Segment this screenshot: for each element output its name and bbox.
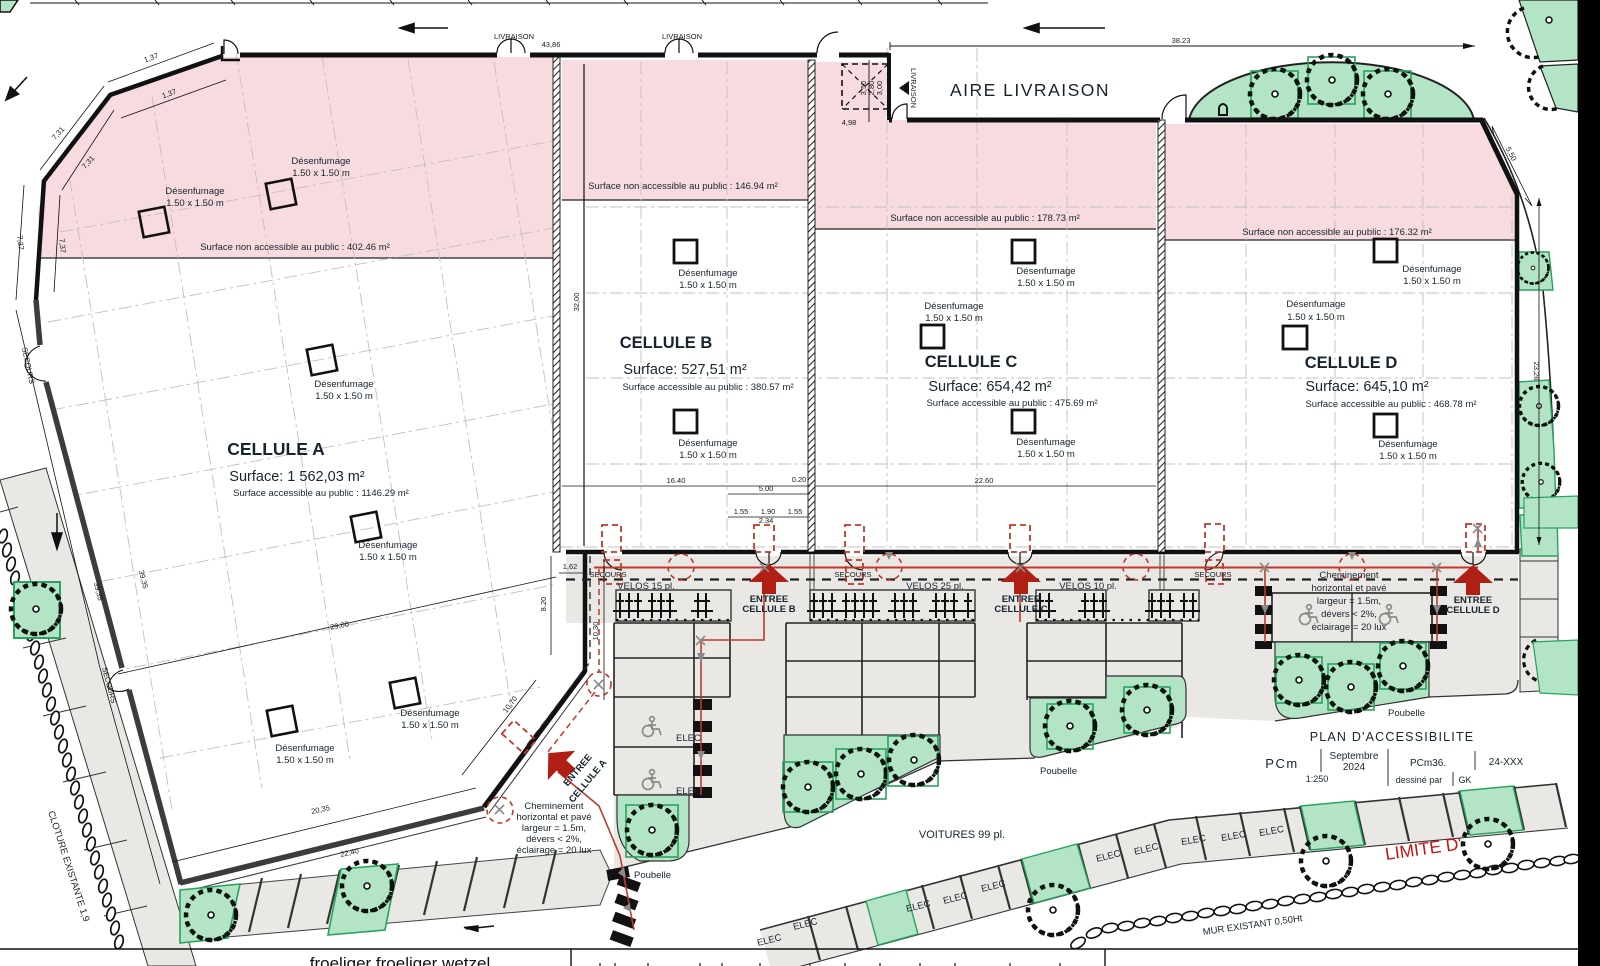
svg-text:LIVRAISON: LIVRAISON — [909, 68, 918, 108]
svg-text:Surface accessible au public :: Surface accessible au public : 1146.29 m… — [233, 488, 409, 499]
svg-text:Septembre: Septembre — [1330, 751, 1379, 762]
svg-text:23,26: 23,26 — [1532, 362, 1541, 381]
svg-text:1.50 x 1.50 m: 1.50 x 1.50 m — [1017, 449, 1075, 460]
svg-text:horizontal et pavé: horizontal et pavé — [517, 812, 592, 823]
svg-text:1.50 x 1.50 m: 1.50 x 1.50 m — [1287, 312, 1345, 323]
svg-text:Désenfumage: Désenfumage — [1402, 264, 1461, 275]
svg-text:CELLULE C: CELLULE C — [925, 353, 1018, 371]
svg-text:Désenfumage: Désenfumage — [1286, 299, 1345, 310]
svg-text:22.60: 22.60 — [975, 476, 994, 485]
svg-text:1.50 x 1.50 m: 1.50 x 1.50 m — [166, 198, 224, 209]
svg-text:VELOS 10 pl.: VELOS 10 pl. — [1059, 581, 1117, 592]
svg-text:Surface non accessible au publ: Surface non accessible au public : 178.7… — [890, 213, 1080, 224]
svg-text:Surface non accessible au publ: Surface non accessible au public : 176.3… — [1242, 227, 1432, 238]
svg-text:1.50 x 1.50 m: 1.50 x 1.50 m — [1403, 276, 1461, 287]
svg-text:Désenfumage: Désenfumage — [1016, 437, 1075, 448]
svg-text:CELLULE D: CELLULE D — [1305, 354, 1398, 372]
svg-text:Désenfumage: Désenfumage — [678, 438, 737, 449]
svg-text:1.50 x 1.50 m: 1.50 x 1.50 m — [359, 552, 417, 563]
svg-text:Surface: 527,51 m²: Surface: 527,51 m² — [623, 362, 746, 378]
svg-text:16.40: 16.40 — [667, 476, 686, 485]
svg-text:1.50 x 1.50 m: 1.50 x 1.50 m — [679, 280, 737, 291]
svg-text:ELEC: ELEC — [676, 733, 701, 744]
svg-text:1.50 x 1.50 m: 1.50 x 1.50 m — [925, 313, 983, 324]
svg-text:VOITURES 99 pl.: VOITURES 99 pl. — [919, 829, 1005, 841]
svg-text:2.34: 2.34 — [759, 516, 774, 525]
svg-text:Désenfumage: Désenfumage — [275, 743, 334, 754]
svg-text:froeliger froeliger wetzel: froeliger froeliger wetzel — [310, 954, 490, 966]
svg-text:5.00: 5.00 — [759, 484, 774, 493]
svg-text:SECOURS: SECOURS — [589, 570, 626, 579]
svg-text:1.50 x 1.50 m: 1.50 x 1.50 m — [315, 391, 373, 402]
svg-text:4,98: 4,98 — [842, 118, 857, 127]
svg-text:dessiné par: dessiné par — [1396, 775, 1443, 785]
svg-text:largeur = 1.5m,: largeur = 1.5m, — [522, 823, 586, 834]
svg-text:7,37: 7,37 — [15, 235, 25, 250]
svg-text:Désenfumage: Désenfumage — [400, 708, 459, 719]
svg-text:PCm36.: PCm36. — [1410, 758, 1446, 769]
svg-text:SECOURS: SECOURS — [834, 570, 871, 579]
svg-text:1.90: 1.90 — [761, 507, 776, 516]
svg-text:horizontal et pavé: horizontal et pavé — [1312, 583, 1387, 594]
svg-text:Surface: 645,10 m²: Surface: 645,10 m² — [1305, 379, 1428, 395]
svg-text:0.20: 0.20 — [792, 475, 807, 484]
svg-text:32,00: 32,00 — [572, 293, 581, 312]
svg-text:dévers < 2%,: dévers < 2%, — [1321, 609, 1377, 620]
svg-text:10,30: 10,30 — [591, 622, 600, 641]
svg-text:Poubelle: Poubelle — [1040, 766, 1077, 777]
svg-text:38.23: 38.23 — [1172, 36, 1191, 45]
svg-text:Surface non accessible au publ: Surface non accessible au public : 402.4… — [200, 242, 390, 253]
svg-text:Désenfumage: Désenfumage — [165, 186, 224, 197]
svg-text:CELLULE D: CELLULE D — [1446, 605, 1499, 616]
svg-text:3,00: 3,00 — [875, 81, 884, 96]
svg-text:1.50 x 1.50 m: 1.50 x 1.50 m — [276, 755, 334, 766]
svg-text:7,37: 7,37 — [57, 238, 67, 253]
svg-text:2024: 2024 — [1343, 762, 1366, 773]
svg-text:1:250: 1:250 — [1306, 774, 1329, 784]
svg-text:CELLULE B: CELLULE B — [620, 334, 713, 352]
svg-text:Surface accessible au public :: Surface accessible au public : 475.69 m² — [926, 398, 1097, 409]
svg-text:1.55: 1.55 — [788, 507, 803, 516]
svg-text:éclairage = 20 lux: éclairage = 20 lux — [1312, 622, 1387, 633]
svg-text:LIVRAISON: LIVRAISON — [662, 32, 702, 41]
svg-text:ELEC: ELEC — [676, 786, 701, 797]
svg-text:Désenfumage: Désenfumage — [1016, 266, 1075, 277]
svg-text:AIRE LIVRAISON: AIRE LIVRAISON — [950, 80, 1110, 100]
svg-text:largeur = 1.5m,: largeur = 1.5m, — [1317, 596, 1381, 607]
svg-text:PCm: PCm — [1265, 756, 1298, 771]
svg-text:1.50 x 1.50 m: 1.50 x 1.50 m — [292, 168, 350, 179]
svg-text:Cheminement: Cheminement — [1319, 570, 1378, 581]
svg-text:VELOS 25 pl.: VELOS 25 pl. — [906, 581, 964, 592]
svg-text:Désenfumage: Désenfumage — [678, 268, 737, 279]
svg-text:SECOURS: SECOURS — [1194, 570, 1231, 579]
svg-text:Surface accessible au public :: Surface accessible au public : 380.57 m² — [622, 382, 793, 393]
svg-text:CELLULE A: CELLULE A — [227, 439, 325, 459]
svg-text:Désenfumage: Désenfumage — [924, 301, 983, 312]
svg-text:Désenfumage: Désenfumage — [314, 379, 373, 390]
svg-text:CELLULE C: CELLULE C — [994, 604, 1047, 615]
svg-text:éclairage = 20 lux: éclairage = 20 lux — [517, 845, 592, 856]
svg-text:Désenfumage: Désenfumage — [358, 540, 417, 551]
svg-text:Poubelle: Poubelle — [1388, 708, 1425, 719]
svg-text:CELLULE B: CELLULE B — [742, 604, 795, 615]
svg-text:Surface: 654,42 m²: Surface: 654,42 m² — [928, 379, 1051, 395]
svg-text:1.50 x 1.50 m: 1.50 x 1.50 m — [1017, 278, 1075, 289]
svg-text:43,86: 43,86 — [542, 40, 561, 49]
svg-text:dévers < 2%,: dévers < 2%, — [526, 834, 582, 845]
svg-text:Poubelle: Poubelle — [634, 870, 671, 881]
svg-text:Surface: 1 562,03 m²: Surface: 1 562,03 m² — [229, 469, 365, 485]
svg-text:VELOS 15 pl.: VELOS 15 pl. — [617, 581, 675, 592]
svg-text:GK: GK — [1458, 775, 1471, 785]
svg-text:Cheminement: Cheminement — [524, 801, 583, 812]
svg-text:PLAN D'ACCESSIBILITE: PLAN D'ACCESSIBILITE — [1310, 730, 1475, 744]
svg-text:Surface accessible au public :: Surface accessible au public : 468.78 m² — [1305, 399, 1476, 410]
svg-text:Désenfumage: Désenfumage — [291, 156, 350, 167]
svg-text:1.50 x 1.50 m: 1.50 x 1.50 m — [401, 720, 459, 731]
svg-text:Surface non accessible au publ: Surface non accessible au public : 146.9… — [588, 181, 778, 192]
svg-text:Désenfumage: Désenfumage — [1378, 439, 1437, 450]
svg-text:1.55: 1.55 — [734, 507, 749, 516]
svg-text:24-XXX: 24-XXX — [1489, 757, 1524, 768]
svg-text:LIVRAISON: LIVRAISON — [494, 32, 534, 41]
svg-text:8.20: 8.20 — [539, 597, 548, 612]
svg-text:1.50 x 1.50 m: 1.50 x 1.50 m — [1379, 451, 1437, 462]
svg-text:1.50 x 1.50 m: 1.50 x 1.50 m — [679, 450, 737, 461]
svg-text:1,62: 1,62 — [563, 562, 578, 571]
